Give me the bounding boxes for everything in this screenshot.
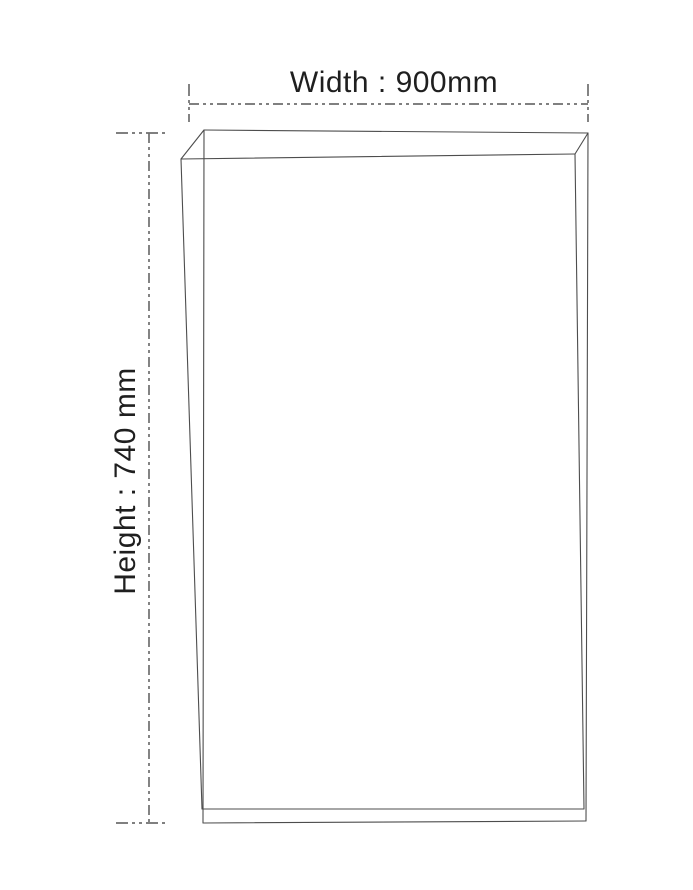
panel-back-top-edge [204,130,588,133]
height-dimension-label: Height : 740 mm [109,367,142,595]
panel-top-left-corner-edge [181,130,204,159]
width-dimension: Width : 900mm [189,66,588,122]
panel-front-right-edge [575,154,584,809]
panel-top-right-corner-edge [575,133,588,154]
panel-outer-bottom-edge [203,821,586,823]
panel-drawing [181,130,588,823]
panel-front-top-edge [181,154,575,159]
panel-back-right-edge [586,133,588,821]
diagram-canvas: Width : 900mm Height : 740 mm [0,0,693,890]
panel-front-left-edge [181,159,202,809]
panel-dimension-diagram: Width : 900mm Height : 740 mm [0,0,693,890]
panel-back-left-edge [203,130,204,823]
width-dimension-label: Width : 900mm [290,66,498,99]
height-dimension: Height : 740 mm [109,133,166,823]
